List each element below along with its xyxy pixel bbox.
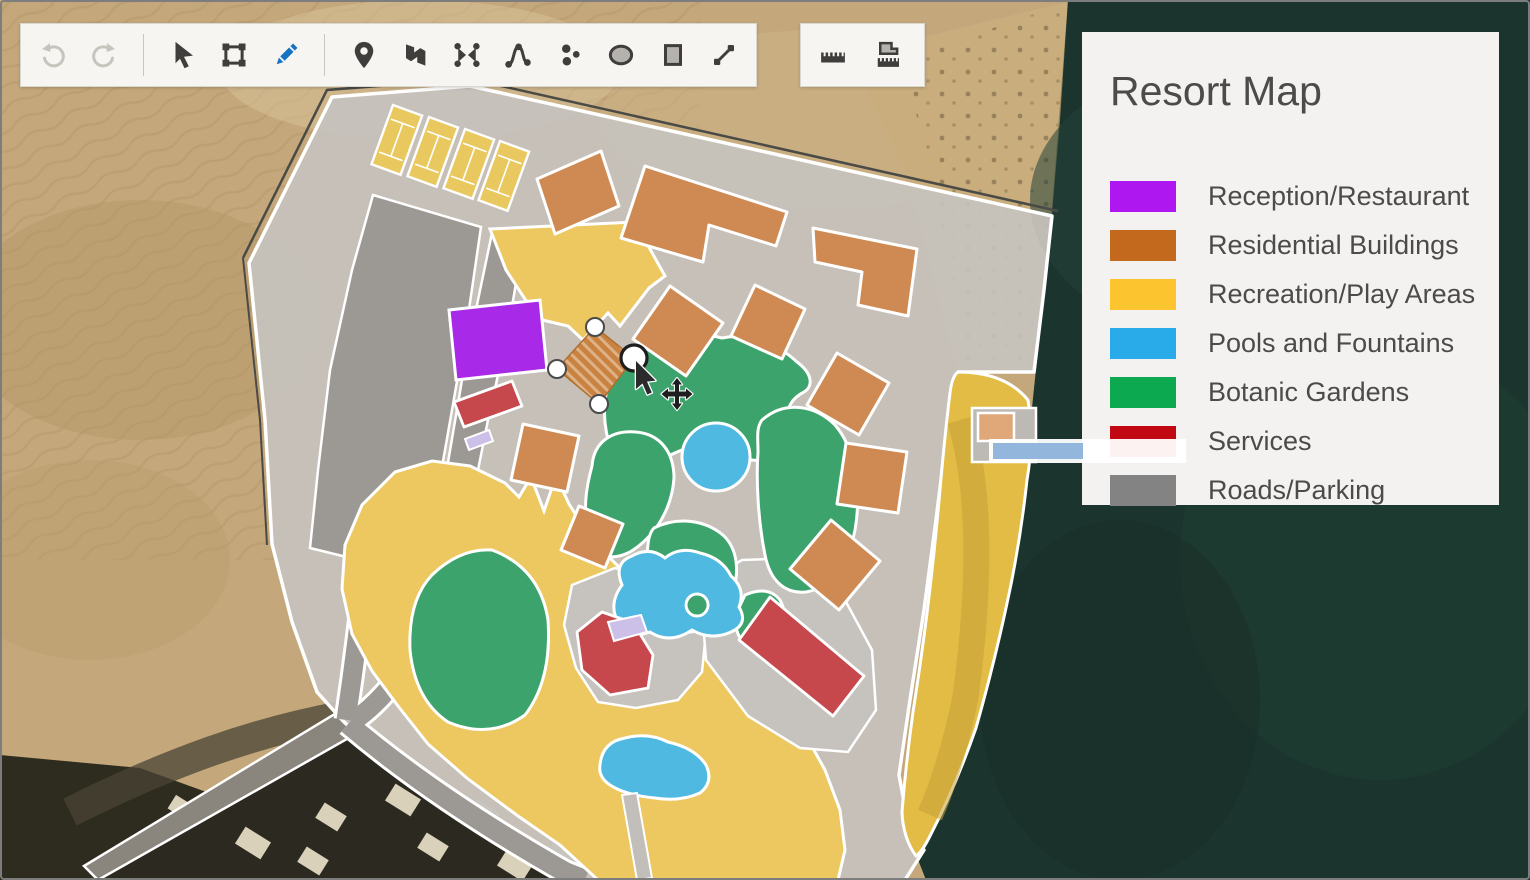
legend-swatch-roads <box>1110 475 1176 506</box>
add-path-button[interactable] <box>497 30 540 80</box>
draw-rectangle-button[interactable] <box>651 30 694 80</box>
fountain[interactable] <box>682 423 750 491</box>
vertex-handle-active[interactable] <box>621 345 647 371</box>
botanic-garden-lawn[interactable] <box>410 550 549 730</box>
legend-item: Pools and Fountains <box>1110 327 1454 359</box>
transform-icon <box>219 40 249 70</box>
legend-item: Recreation/Play Areas <box>1110 278 1475 310</box>
add-polygon-button[interactable] <box>394 30 437 80</box>
vertex-handle[interactable] <box>590 395 608 413</box>
measure-toolbar <box>800 23 925 87</box>
draw-tool-button[interactable] <box>264 30 307 80</box>
measure-distance-button[interactable] <box>811 30 855 80</box>
legend-swatch-recreation <box>1110 279 1176 310</box>
path-icon <box>503 40 533 70</box>
legend-item: Roads/Parking <box>1110 474 1385 506</box>
rectangle-icon <box>658 40 688 70</box>
pencil-icon <box>271 40 301 70</box>
transform-tool-button[interactable] <box>212 30 255 80</box>
toolbar-separator <box>143 34 144 76</box>
undo-icon <box>38 40 68 70</box>
legend-swatch-residential <box>1110 230 1176 261</box>
edit-vertices-button[interactable] <box>445 30 488 80</box>
area-ruler-icon <box>874 40 904 70</box>
vertex-handle[interactable] <box>548 360 566 378</box>
legend-swatch-pools <box>1110 328 1176 359</box>
undo-button[interactable] <box>31 30 74 80</box>
ellipse-icon <box>606 40 636 70</box>
marker-icon <box>349 40 379 70</box>
add-points-button[interactable] <box>548 30 591 80</box>
legend-item: Residential Buildings <box>1110 229 1459 261</box>
legend-item: Reception/Restaurant <box>1110 180 1469 212</box>
legend-swatch-gardens <box>1110 377 1176 408</box>
draw-line-button[interactable] <box>703 30 746 80</box>
pier-walkway[interactable] <box>993 443 1083 459</box>
points-icon <box>555 40 585 70</box>
vertex-handle[interactable] <box>586 318 604 336</box>
residential-building <box>837 443 907 513</box>
beach-building[interactable] <box>978 413 1014 441</box>
reception-building[interactable] <box>449 300 547 380</box>
line-icon <box>709 40 739 70</box>
polygon-icon <box>401 40 431 70</box>
vertices-icon <box>452 40 482 70</box>
draw-ellipse-button[interactable] <box>600 30 643 80</box>
cursor-icon <box>168 40 198 70</box>
drawing-toolbar <box>20 23 757 87</box>
add-marker-button[interactable] <box>342 30 385 80</box>
ruler-icon <box>818 40 848 70</box>
toolbar-separator <box>324 34 325 76</box>
legend-panel: Resort Map Reception/Restaurant Resident… <box>1082 32 1499 505</box>
measure-area-button[interactable] <box>867 30 911 80</box>
redo-icon <box>89 40 119 70</box>
redo-button[interactable] <box>82 30 125 80</box>
select-tool-button[interactable] <box>161 30 204 80</box>
legend-title: Resort Map <box>1110 68 1499 115</box>
legend-item: Botanic Gardens <box>1110 376 1409 408</box>
legend-swatch-reception <box>1110 181 1176 212</box>
residential-building <box>511 424 579 492</box>
